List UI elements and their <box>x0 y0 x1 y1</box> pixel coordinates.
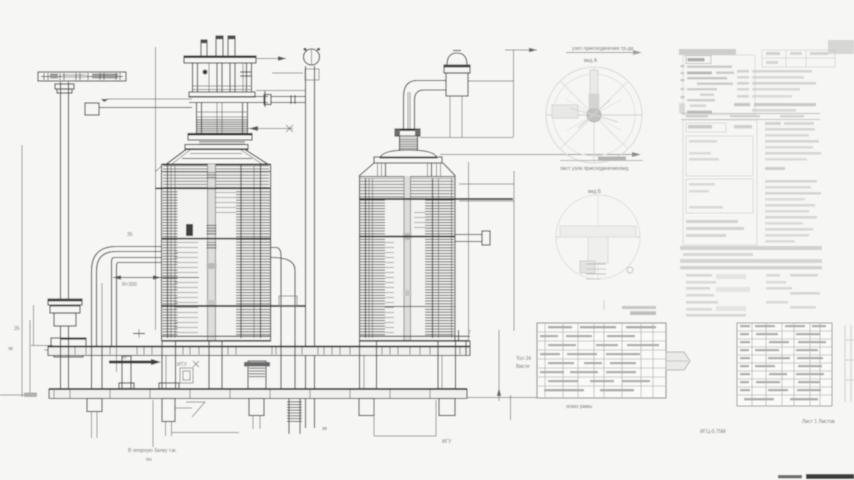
svg-text:В опорную балку т.м.: В опорную балку т.м. <box>128 448 177 454</box>
svg-text:лист узла присоединения: лист узла присоединения <box>560 166 620 172</box>
svg-text:Тол 34: Тол 34 <box>516 356 531 362</box>
svg-text:7: 7 <box>468 330 471 336</box>
svg-text:вид А: вид А <box>584 58 598 64</box>
svg-text:ИТУ: ИТУ <box>177 362 188 368</box>
svg-text:узел присоединения тр-да: узел присоединения тр-да <box>572 46 634 52</box>
svg-text:Висте: Висте <box>516 364 530 370</box>
svg-text:ИГЦ-0,75М: ИГЦ-0,75М <box>700 429 726 435</box>
svg-text:ИГУ: ИГУ <box>442 439 452 445</box>
svg-text:вид Б: вид Б <box>588 189 602 195</box>
svg-text:Лист 1 Листов: Лист 1 Листов <box>802 419 835 425</box>
svg-text:35: 35 <box>14 326 20 332</box>
svg-text:35: 35 <box>127 232 133 238</box>
svg-text:зв: зв <box>8 346 13 352</box>
svg-text:вид: вид <box>620 166 628 172</box>
svg-text:35: 35 <box>121 355 127 361</box>
svg-text:эскиз рамы: эскиз рамы <box>566 404 593 410</box>
svg-text:зв: зв <box>322 426 327 432</box>
svg-text:R=300: R=300 <box>122 282 137 288</box>
svg-text:пн: пн <box>146 457 152 463</box>
